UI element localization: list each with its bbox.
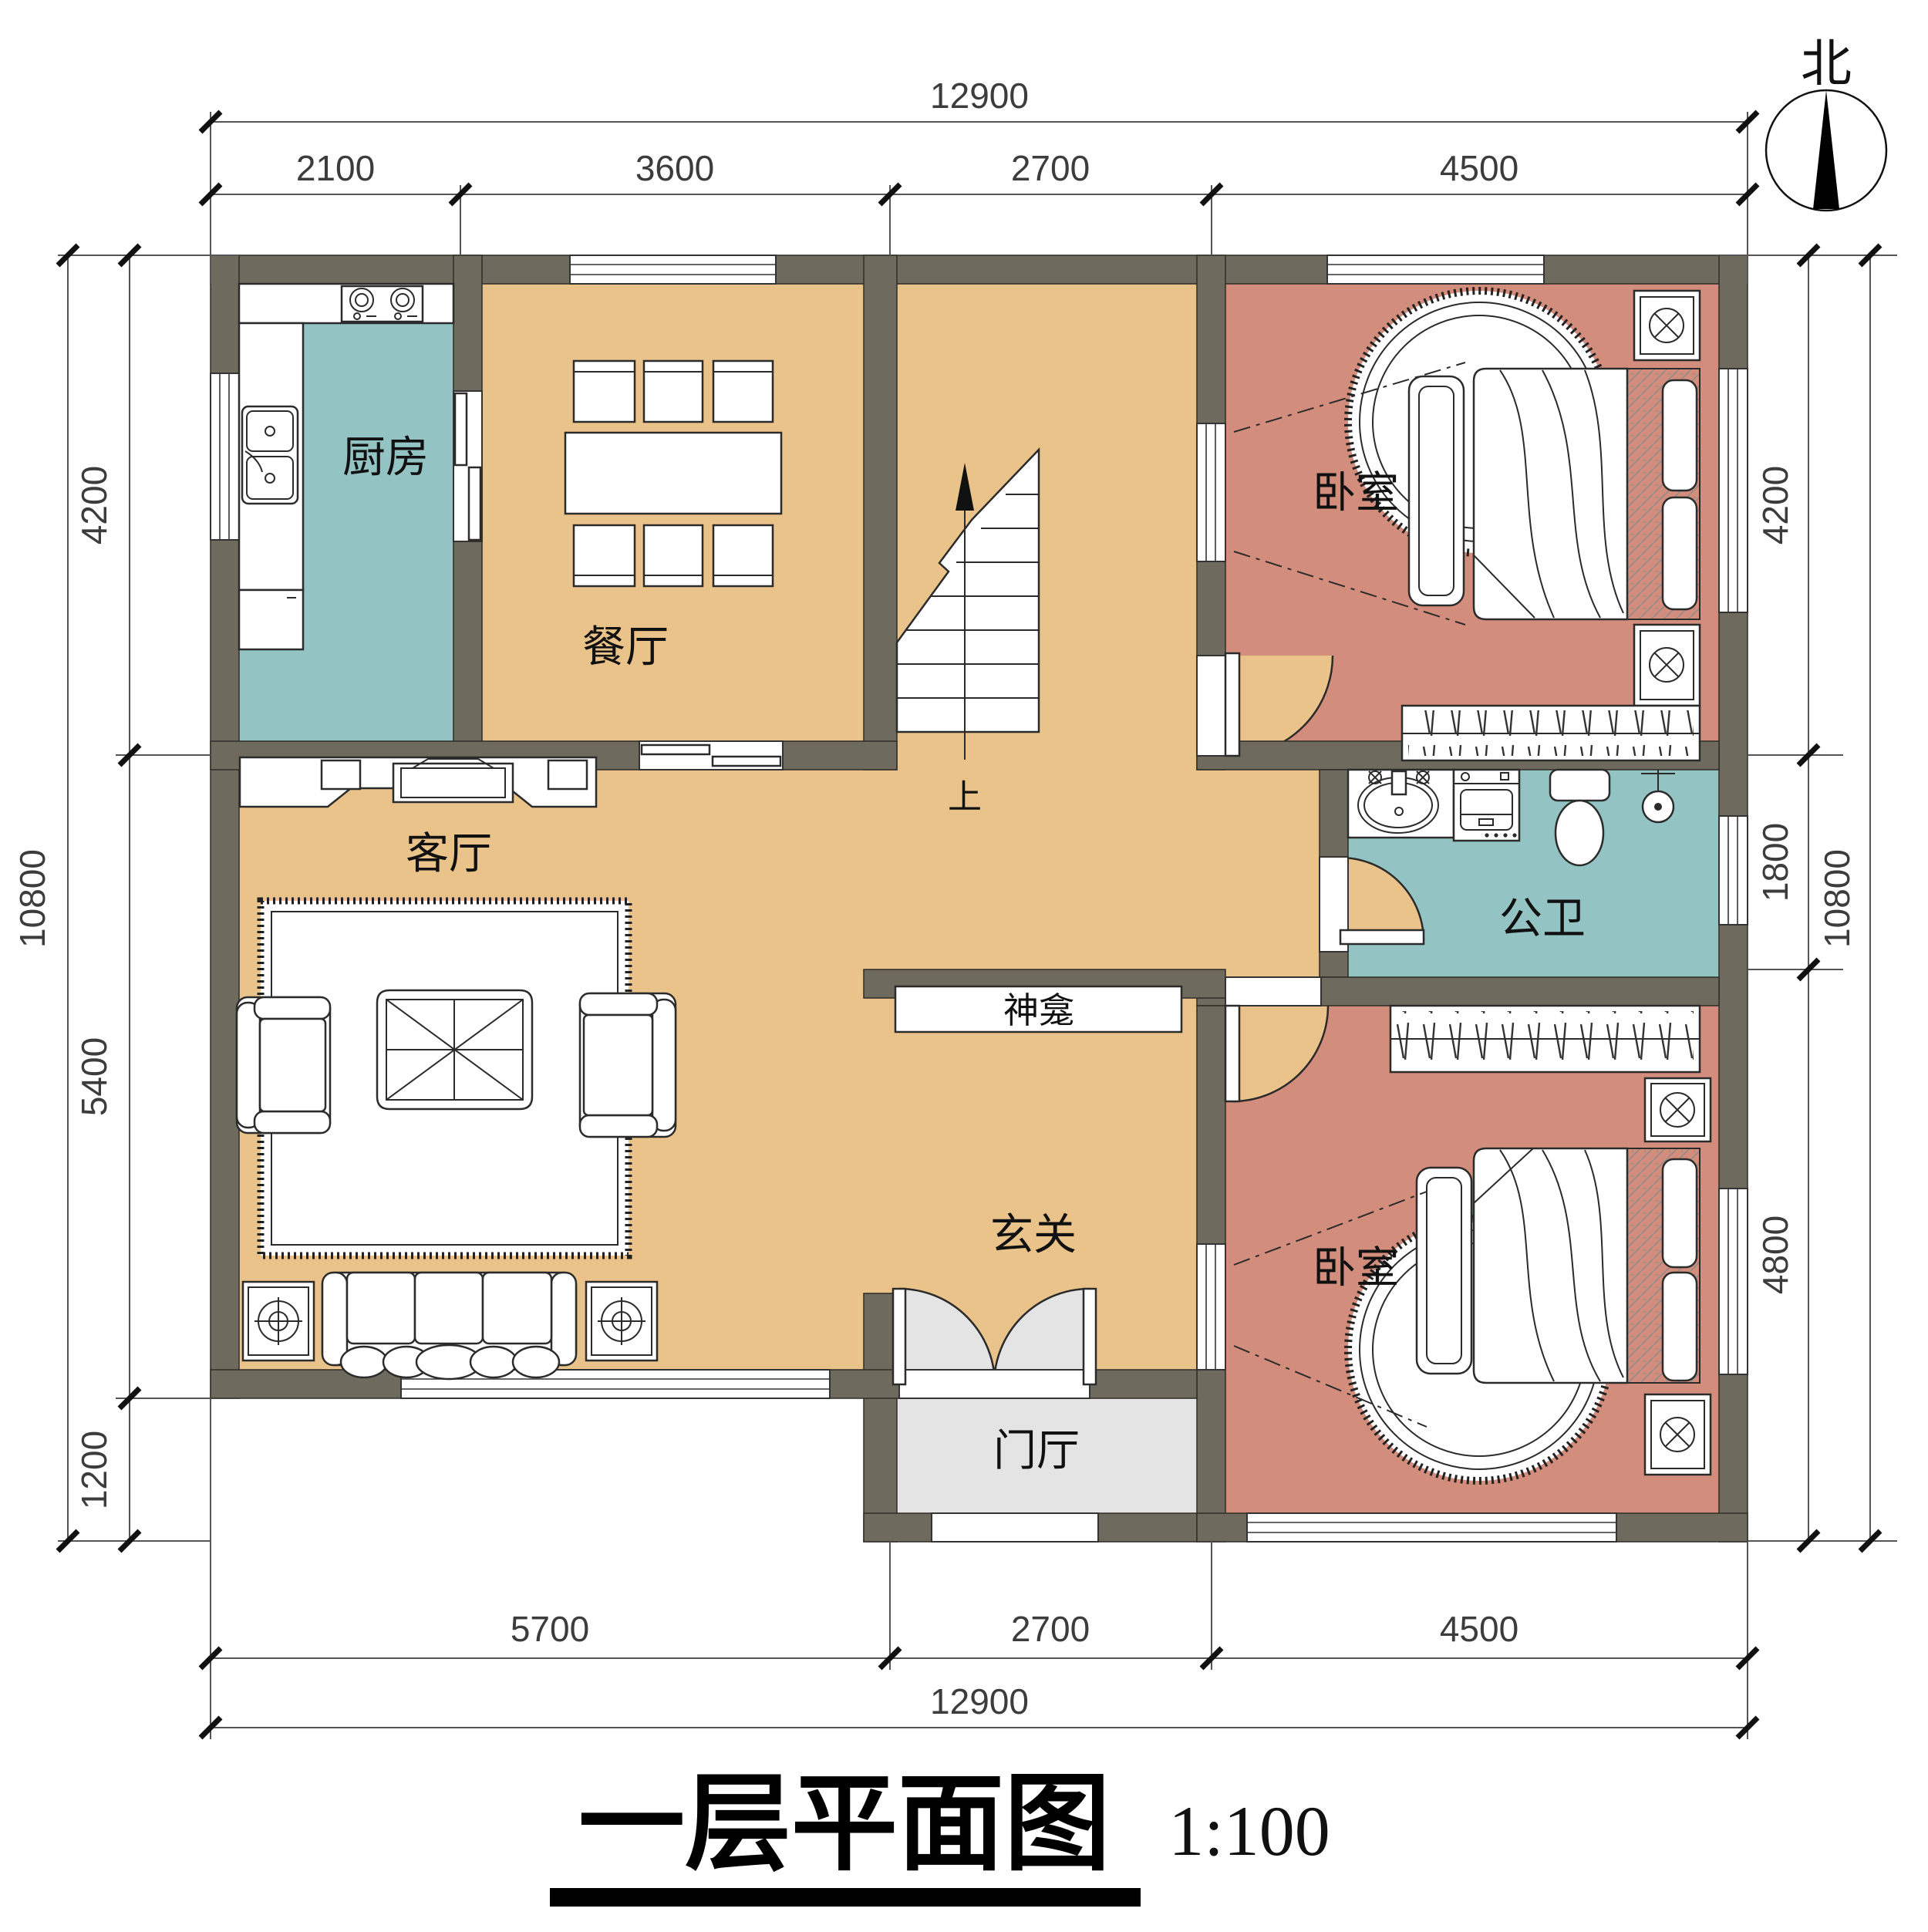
entry-door-opening — [899, 1370, 1090, 1398]
bedroom-top-interior-window — [1197, 423, 1225, 561]
dim-bottom-seg-1: 5700 — [511, 1609, 589, 1649]
bedroom-top-door-opening — [1197, 656, 1225, 756]
bedroom-top-label: 卧室 — [1313, 470, 1399, 518]
foyer-label: 门厅 — [993, 1428, 1080, 1475]
bedroom-bottom-door-leaf — [1225, 1006, 1239, 1101]
foyer-outer-opening — [932, 1513, 1098, 1542]
drawing-scale: 1:100 — [1168, 1792, 1330, 1870]
dim-left-seg-1: 4200 — [74, 466, 114, 545]
bedroom-bottom-door-opening — [1225, 977, 1321, 1006]
shrine-label: 神龛 — [1003, 991, 1074, 1030]
pillow — [1663, 1273, 1697, 1381]
north-label: 北 — [1801, 36, 1852, 93]
dim-right-seg-2: 1800 — [1755, 823, 1795, 902]
dim-top-seg-1: 2100 — [296, 148, 375, 188]
kitchen-slide-leaf-1 — [455, 393, 467, 465]
side-table-left — [243, 1282, 314, 1360]
bedroom-bottom-window — [1247, 1513, 1616, 1542]
bedroom-top-right-window — [1719, 369, 1748, 612]
bedroom-top-wardrobe — [1402, 706, 1700, 760]
dining-table — [565, 433, 781, 514]
bedroom-bottom-wardrobe — [1390, 1006, 1700, 1072]
dim-top: 12900 2100 3600 2700 4500 — [201, 76, 1758, 284]
stove-icon — [342, 286, 423, 322]
dim-right-seg-3: 4800 — [1755, 1216, 1795, 1294]
nightstand — [1645, 1394, 1711, 1475]
floor-plan-drawing: 厨房 餐厅 客厅 卧室 公卫 神龛 玄关 门厅 卧室 上 12900 2100 … — [0, 0, 1928, 1932]
armchair-left — [237, 997, 330, 1133]
kitchen-cabinet — [239, 590, 303, 649]
title-block: 一层平面图 1:100 — [550, 1765, 1330, 1907]
dim-top-seg-2: 3600 — [635, 148, 714, 188]
dim-right-seg-1: 4200 — [1755, 466, 1795, 545]
bedroom-bottom-bench — [1417, 1168, 1471, 1374]
dim-right-total: 10800 — [1817, 849, 1857, 948]
bedroom-top-window — [1327, 255, 1544, 284]
north-compass: 北 — [1766, 36, 1886, 211]
pillow — [1663, 380, 1697, 491]
bedroom-top-door-leaf — [1225, 653, 1239, 756]
dim-left-seg-3: 1200 — [74, 1431, 114, 1509]
side-table-right — [586, 1282, 657, 1360]
floor-plan-page: 厨房 餐厅 客厅 卧室 公卫 神龛 玄关 门厅 卧室 上 12900 2100 … — [0, 0, 1928, 1932]
dim-bottom-seg-2: 2700 — [1011, 1609, 1090, 1649]
page-title: 一层平面图 — [578, 1765, 1111, 1883]
dim-top-total: 12900 — [930, 76, 1029, 116]
bathroom-window — [1719, 816, 1748, 925]
entry-door-right-leaf — [1084, 1289, 1096, 1384]
dim-top-seg-3: 2700 — [1011, 148, 1090, 188]
dining-slide-leaf-1 — [642, 745, 710, 754]
sink-icon — [242, 406, 298, 504]
nightstand — [1645, 1078, 1711, 1141]
dining-room — [565, 361, 781, 586]
dim-bottom-seg-3: 4500 — [1440, 1609, 1518, 1649]
dining-label: 餐厅 — [582, 624, 669, 672]
dim-left-total: 10800 — [12, 849, 52, 948]
bathroom-door-leaf — [1340, 930, 1424, 944]
title-underline — [550, 1888, 1141, 1907]
dim-top-seg-4: 4500 — [1440, 148, 1518, 188]
bedroom-bottom-label: 卧室 — [1313, 1245, 1399, 1293]
armchair-right — [580, 993, 676, 1137]
kitchen-label: 厨房 — [342, 434, 429, 482]
bedroom-bottom-interior-window — [1197, 1244, 1225, 1370]
pillow — [1663, 1159, 1697, 1267]
bedroom-bottom-right-window — [1719, 1189, 1748, 1374]
stairs-up-label: 上 — [948, 778, 982, 816]
nightstand — [1634, 625, 1700, 706]
tv-cabinet — [240, 757, 596, 807]
coffee-table — [377, 990, 532, 1109]
vanity-sink-icon — [1348, 770, 1454, 838]
bedroom-bottom-bed — [1474, 1148, 1700, 1383]
washing-machine-icon — [1454, 770, 1519, 841]
bedroom-top-bench — [1409, 376, 1464, 605]
dim-left: 4200 5400 1200 10800 — [12, 245, 239, 1551]
kitchen-slide-leaf-2 — [469, 467, 480, 540]
pillow — [1663, 497, 1697, 609]
dining-slide-leaf-2 — [713, 757, 780, 766]
bedroom-top-bed — [1474, 369, 1700, 619]
compass-needle-icon — [1813, 90, 1839, 209]
nightstand — [1634, 291, 1700, 360]
corridor-floor — [1197, 770, 1320, 977]
dining-top-window — [570, 255, 776, 284]
sofa — [322, 1273, 576, 1379]
dim-bottom-total: 12900 — [930, 1681, 1029, 1721]
living-label: 客厅 — [406, 831, 492, 878]
tv-icon — [393, 764, 513, 802]
entry-door-left-leaf — [893, 1289, 905, 1384]
entry-hall-label: 玄关 — [990, 1212, 1077, 1259]
kitchen-window — [211, 373, 239, 540]
dim-left-seg-2: 5400 — [74, 1037, 114, 1116]
bathroom-label: 公卫 — [1499, 895, 1586, 943]
